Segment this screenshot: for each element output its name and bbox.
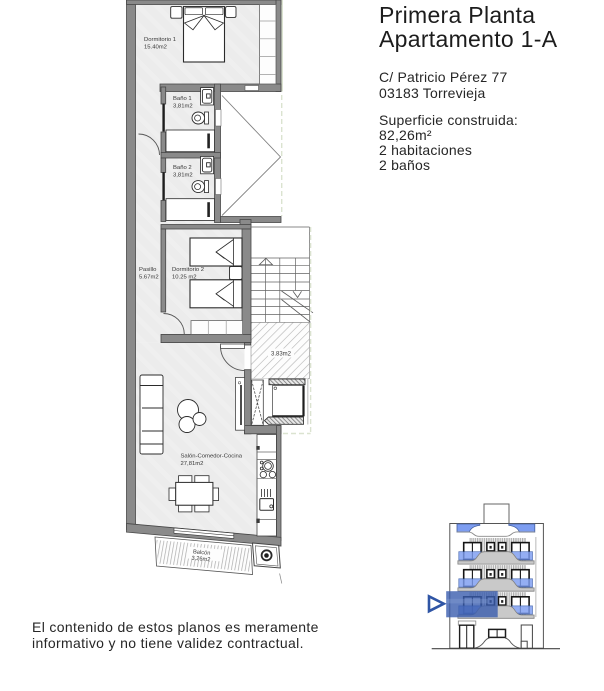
- svg-text:27,81m2: 27,81m2: [181, 461, 204, 467]
- svg-text:15.40m2: 15.40m2: [144, 45, 167, 51]
- svg-text:Dormitorio 2: Dormitorio 2: [172, 267, 204, 273]
- svg-text:Baño 2: Baño 2: [173, 165, 192, 171]
- svg-text:Baño 1: Baño 1: [173, 96, 192, 102]
- svg-text:3,81m2: 3,81m2: [173, 173, 193, 179]
- svg-text:Pasillo: Pasillo: [139, 267, 157, 273]
- svg-text:Dormitorio 1: Dormitorio 1: [144, 37, 176, 43]
- svg-text:Salón-Comedor-Cocina: Salón-Comedor-Cocina: [181, 454, 243, 460]
- svg-text:3.83m2: 3.83m2: [271, 351, 292, 357]
- svg-text:3,81m2: 3,81m2: [173, 104, 193, 110]
- svg-text:10.25 m2: 10.25 m2: [172, 275, 197, 281]
- svg-text:5.67m2: 5.67m2: [139, 275, 159, 281]
